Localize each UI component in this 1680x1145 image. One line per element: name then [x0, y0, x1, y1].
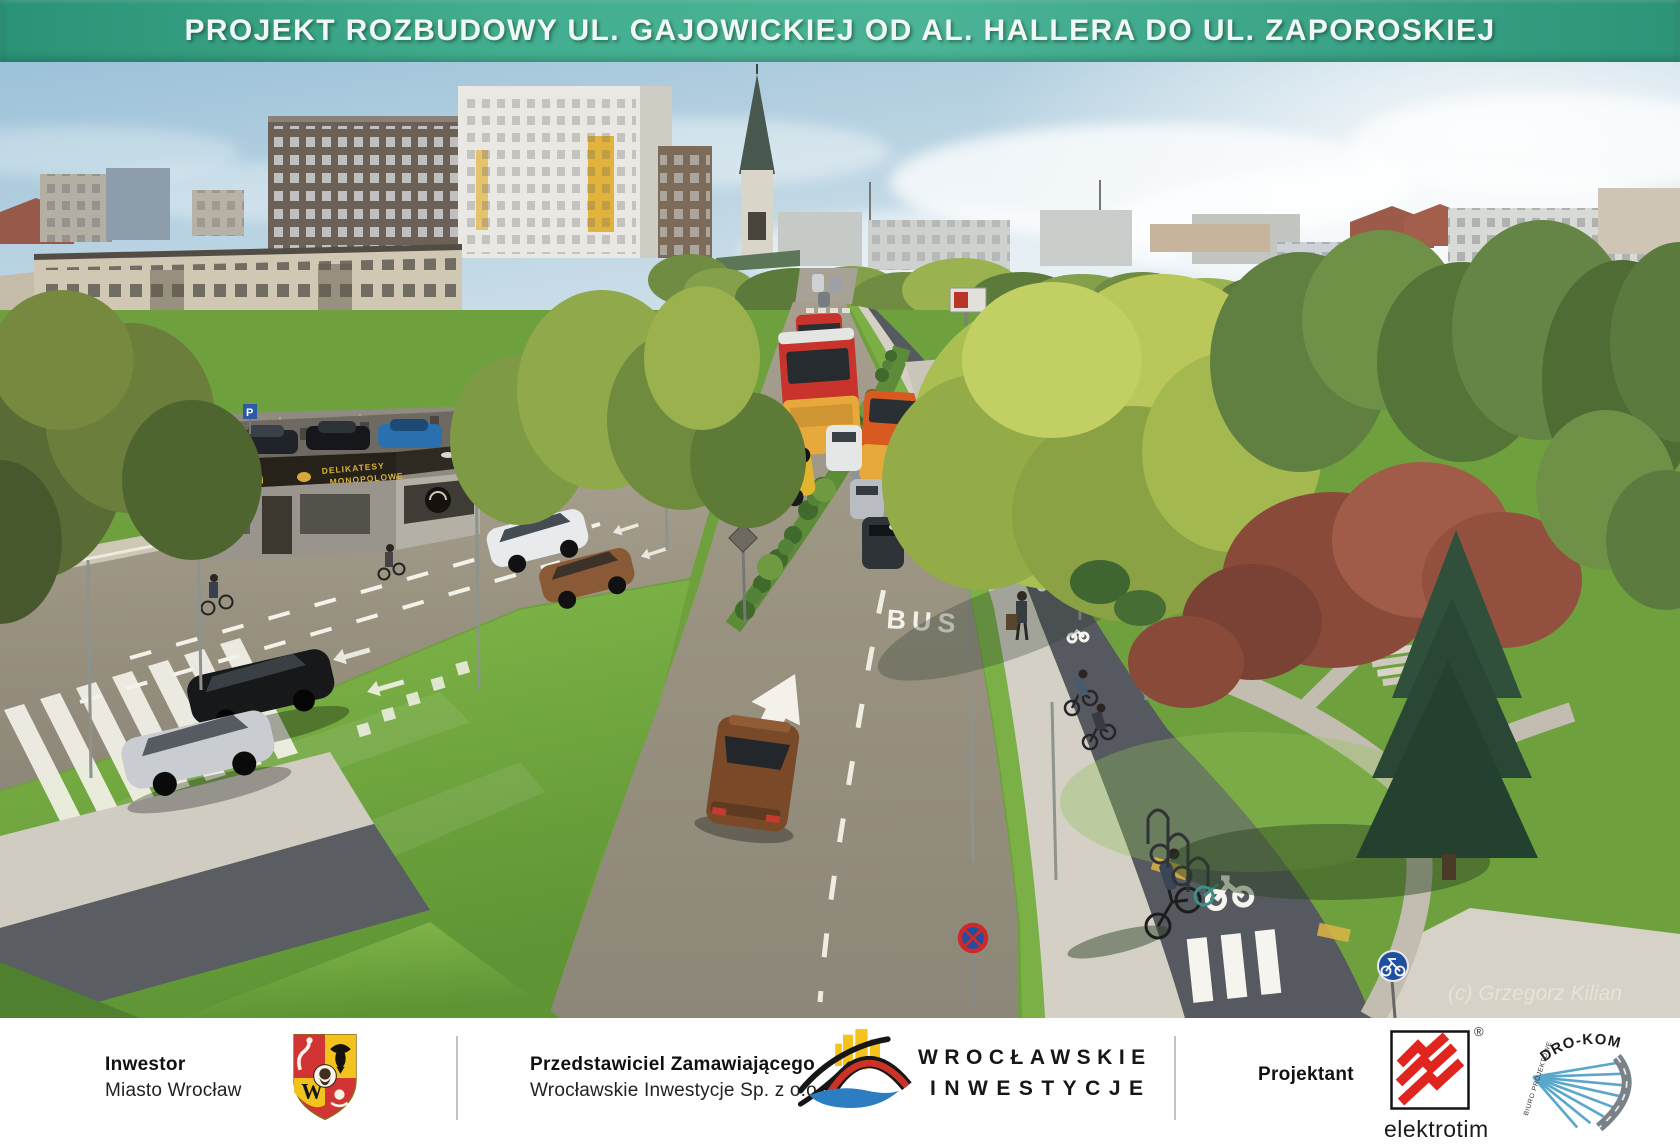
project-poster: PROJEKT ROZBUDOWY UL. GAJOWICKIEJ OD AL.… [0, 0, 1680, 1145]
investor-label: Inwestor [105, 1054, 242, 1076]
street-visualization: BUS BUS BUS [0, 62, 1680, 1018]
svg-text:P: P [246, 407, 253, 419]
registered-mark: ® [1474, 1024, 1484, 1039]
wroclawskie-inwestycje-logo [798, 1028, 916, 1112]
elektrotim-name: elektrotim [1384, 1116, 1470, 1143]
wi-wordmark: WROCŁAWSKIE INWESTYCJE [918, 1046, 1152, 1101]
photo-credit: (c) Grzegorz Kilian [1448, 982, 1622, 1005]
representative-value: Wrocławskie Inwestycje Sp. z o.o. [530, 1080, 822, 1102]
footer-divider [456, 1036, 458, 1120]
investor-value: Miasto Wrocław [105, 1080, 242, 1102]
representative-block: Przedstawiciel Zamawiającego Wrocławskie… [530, 1054, 822, 1102]
wroclaw-coat-of-arms: W [292, 1032, 358, 1122]
van [826, 425, 862, 471]
car [850, 479, 884, 519]
drokom-logo: DRO-KOM BIURO PROJEKTOWE [1520, 1024, 1652, 1132]
elektrotim-mark [1390, 1030, 1470, 1110]
wi-wordmark-line1: WROCŁAWSKIE [918, 1046, 1152, 1070]
elektrotim-logo: ® elektrotim [1390, 1030, 1470, 1143]
designer-label: Projektant [1258, 1064, 1354, 1086]
title-banner: PROJEKT ROZBUDOWY UL. GAJOWICKIEJ OD AL.… [0, 0, 1680, 62]
footer-divider [1174, 1036, 1176, 1120]
footer: Inwestor Miasto Wrocław W Przedstawiciel… [0, 1018, 1680, 1145]
investor-block: Inwestor Miasto Wrocław [105, 1054, 242, 1102]
poster-title: PROJEKT ROZBUDOWY UL. GAJOWICKIEJ OD AL.… [184, 14, 1495, 48]
wi-wordmark-line2: INWESTYCJE [930, 1077, 1152, 1101]
representative-label: Przedstawiciel Zamawiającego [530, 1054, 822, 1076]
bike-crossing [1187, 929, 1282, 1003]
